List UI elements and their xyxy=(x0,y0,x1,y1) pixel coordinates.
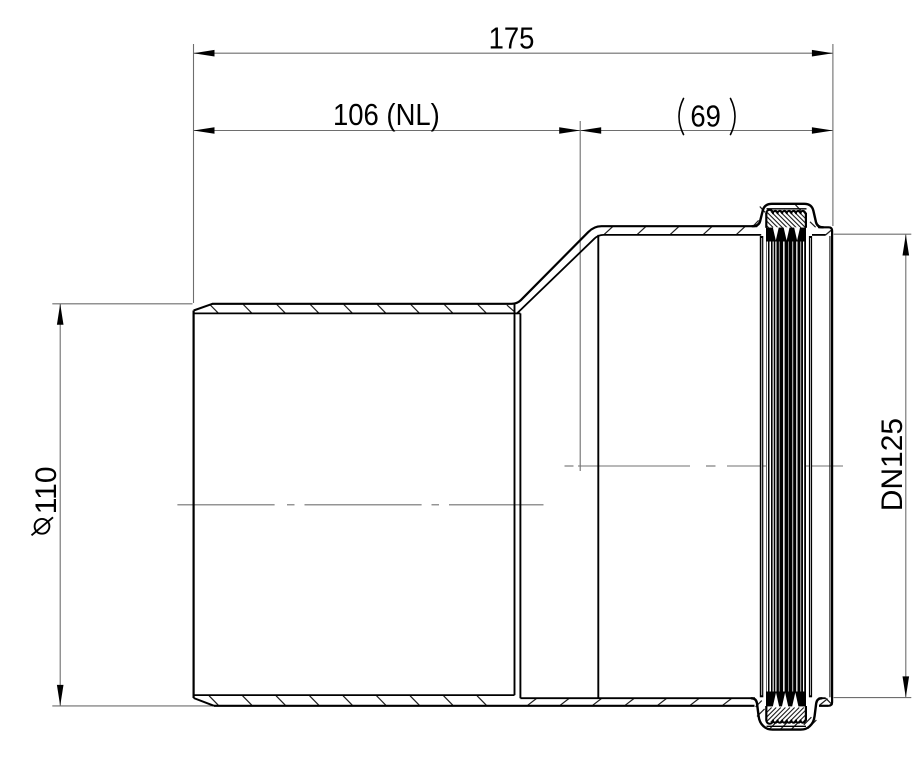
svg-text:106 (NL): 106 (NL) xyxy=(333,99,440,133)
svg-text:69: 69 xyxy=(690,100,721,134)
svg-text:110: 110 xyxy=(30,466,63,514)
svg-text:DN125: DN125 xyxy=(876,418,909,511)
svg-text:175: 175 xyxy=(489,22,535,56)
